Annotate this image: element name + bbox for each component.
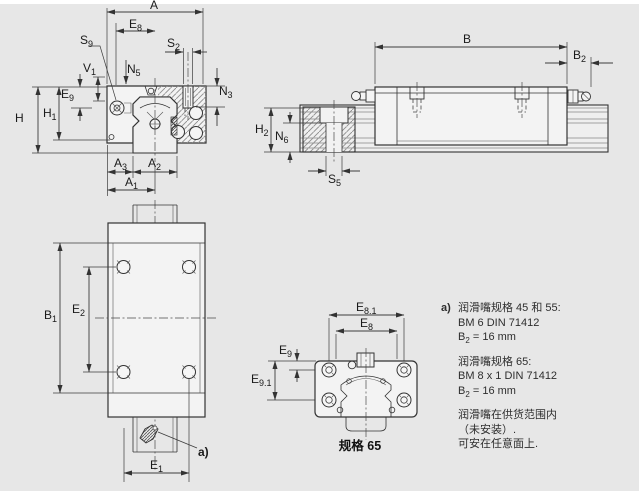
ball-bore — [190, 107, 203, 120]
dim-label-B1: B 1 — [44, 308, 57, 324]
dim-label-E81: E 8.1 — [356, 300, 377, 316]
svg-text:2: 2 — [80, 308, 85, 318]
seal-strip — [171, 117, 177, 135]
svg-text:8: 8 — [368, 322, 373, 332]
dim-label-A1: A 1 — [125, 175, 138, 191]
svg-text:9: 9 — [88, 39, 93, 49]
svg-text:E: E — [150, 458, 158, 472]
note-group-1: 润滑嘴规格 45 和 55: BM 6 DIN 71412 B2 = 16 mm — [458, 301, 637, 349]
dim-label-E2: E 2 — [72, 302, 85, 318]
svg-text:3: 3 — [122, 162, 127, 172]
size65-caption: 规格 65 — [339, 438, 381, 453]
size65-section-view: E 8.1 E 8 E 9 E 9.1 规格 65 — [251, 300, 417, 453]
note-line: BM 6 DIN 71412 — [458, 316, 637, 331]
callout-a-label: a) — [198, 445, 209, 459]
rail-end-section — [303, 100, 355, 162]
dim-label-S5: S 5 — [328, 172, 341, 188]
svg-text:A: A — [148, 156, 156, 170]
dim-label-N6: N 6 — [275, 129, 289, 145]
note-line: 可安在任意面上. — [458, 437, 637, 452]
svg-text:E: E — [61, 87, 69, 101]
ball-bore — [190, 127, 203, 140]
svg-text:E: E — [356, 300, 364, 314]
svg-text:8: 8 — [137, 23, 142, 33]
svg-text:V: V — [83, 61, 91, 75]
svg-text:6: 6 — [284, 135, 289, 145]
svg-text:3: 3 — [228, 90, 233, 100]
svg-text:9.1: 9.1 — [259, 378, 272, 388]
svg-text:9: 9 — [69, 93, 74, 103]
svg-text:B: B — [44, 308, 52, 322]
size65-lube-port — [348, 353, 374, 369]
svg-text:E: E — [251, 372, 259, 386]
svg-text:N: N — [219, 84, 228, 98]
svg-text:1: 1 — [158, 464, 163, 474]
note-line: 润滑嘴规格 65: — [458, 355, 637, 370]
svg-text:2: 2 — [581, 54, 586, 64]
svg-text:1: 1 — [52, 112, 57, 122]
svg-text:1: 1 — [91, 67, 96, 77]
dim-label-S9: S 9 — [80, 33, 93, 49]
svg-text:H: H — [255, 122, 264, 136]
dim-label-N5: N 5 — [127, 62, 141, 78]
dim-label-S2: S 2 — [167, 36, 180, 52]
svg-text:A: A — [150, 0, 158, 12]
svg-text:E: E — [72, 302, 80, 316]
note-marker: a) — [441, 301, 451, 316]
grease-nipple-left — [352, 90, 376, 102]
top-view: B 1 E 2 E 1 a) — [44, 200, 218, 482]
svg-text:A: A — [114, 156, 122, 170]
grease-nipple-right — [568, 90, 591, 103]
dim-label-H1: H 1 — [43, 106, 57, 122]
lube-nipple-notes: a) 润滑嘴规格 45 和 55: BM 6 DIN 71412 B2 = 16… — [441, 301, 637, 458]
dim-label-E1: E 1 — [150, 458, 163, 474]
dim-label-B2: B 2 — [573, 48, 586, 64]
carriage-side — [375, 87, 567, 145]
dim-label-H2: H 2 — [255, 122, 269, 138]
note-group-3: 润滑嘴在供货范围内 （未安装）. 可安在任意面上. — [458, 408, 637, 452]
dim-label-E91: E 9.1 — [251, 372, 272, 388]
dim-label-N3: N 3 — [219, 84, 233, 100]
svg-text:H: H — [15, 111, 24, 125]
svg-text:E: E — [279, 343, 287, 357]
svg-text:B: B — [463, 32, 471, 46]
technical-drawing-page: A E 8 S 2 S 9 V 1 N 5 N 3 E 9 H H 1 A 3 … — [0, 0, 639, 491]
dim-label-E8-65: E 8 — [360, 316, 373, 332]
note-line: B2 = 16 mm — [458, 384, 637, 403]
dim-label-E8: E 8 — [129, 17, 142, 33]
svg-text:E: E — [129, 17, 137, 31]
svg-text:2: 2 — [175, 42, 180, 52]
svg-text:2: 2 — [156, 162, 161, 172]
svg-text:N: N — [275, 129, 284, 143]
note-line: （未安装）. — [458, 423, 637, 438]
dim-label-A: A — [150, 0, 158, 12]
svg-text:S: S — [167, 36, 175, 50]
svg-text:1: 1 — [133, 181, 138, 191]
note-line: 润滑嘴规格 45 和 55: — [458, 301, 637, 316]
carriage-top — [108, 223, 205, 417]
svg-text:1: 1 — [52, 314, 57, 324]
svg-text:5: 5 — [136, 68, 141, 78]
dim-label-B: B — [463, 32, 471, 46]
dim-label-E9-65: E 9 — [279, 343, 292, 359]
note-line: BM 8 x 1 DIN 71412 — [458, 369, 637, 384]
svg-text:8.1: 8.1 — [364, 306, 377, 316]
svg-text:E: E — [360, 316, 368, 330]
dim-label-E9: E 9 — [61, 87, 74, 103]
note-line: B2 = 16 mm — [458, 330, 637, 349]
side-view: B B 2 H 2 N 6 S 5 — [255, 32, 613, 188]
svg-text:B: B — [573, 48, 581, 62]
svg-text:9: 9 — [287, 349, 292, 359]
note-group-2: 润滑嘴规格 65: BM 8 x 1 DIN 71412 B2 = 16 mm — [458, 355, 637, 403]
svg-text:5: 5 — [336, 178, 341, 188]
front-section-view: A E 8 S 2 S 9 V 1 N 5 N 3 E 9 H H 1 A 3 … — [15, 0, 233, 196]
svg-text:2: 2 — [264, 128, 269, 138]
dim-label-A2: A 2 — [148, 156, 161, 172]
dim-label-H: H — [15, 111, 24, 125]
note-line: 润滑嘴在供货范围内 — [458, 408, 637, 423]
svg-text:S: S — [80, 33, 88, 47]
dim-label-A3: A 3 — [114, 156, 127, 172]
svg-text:H: H — [43, 106, 52, 120]
svg-text:S: S — [328, 172, 336, 186]
svg-text:N: N — [127, 62, 136, 76]
svg-text:A: A — [125, 175, 133, 189]
dim-label-V1: V 1 — [83, 61, 96, 77]
